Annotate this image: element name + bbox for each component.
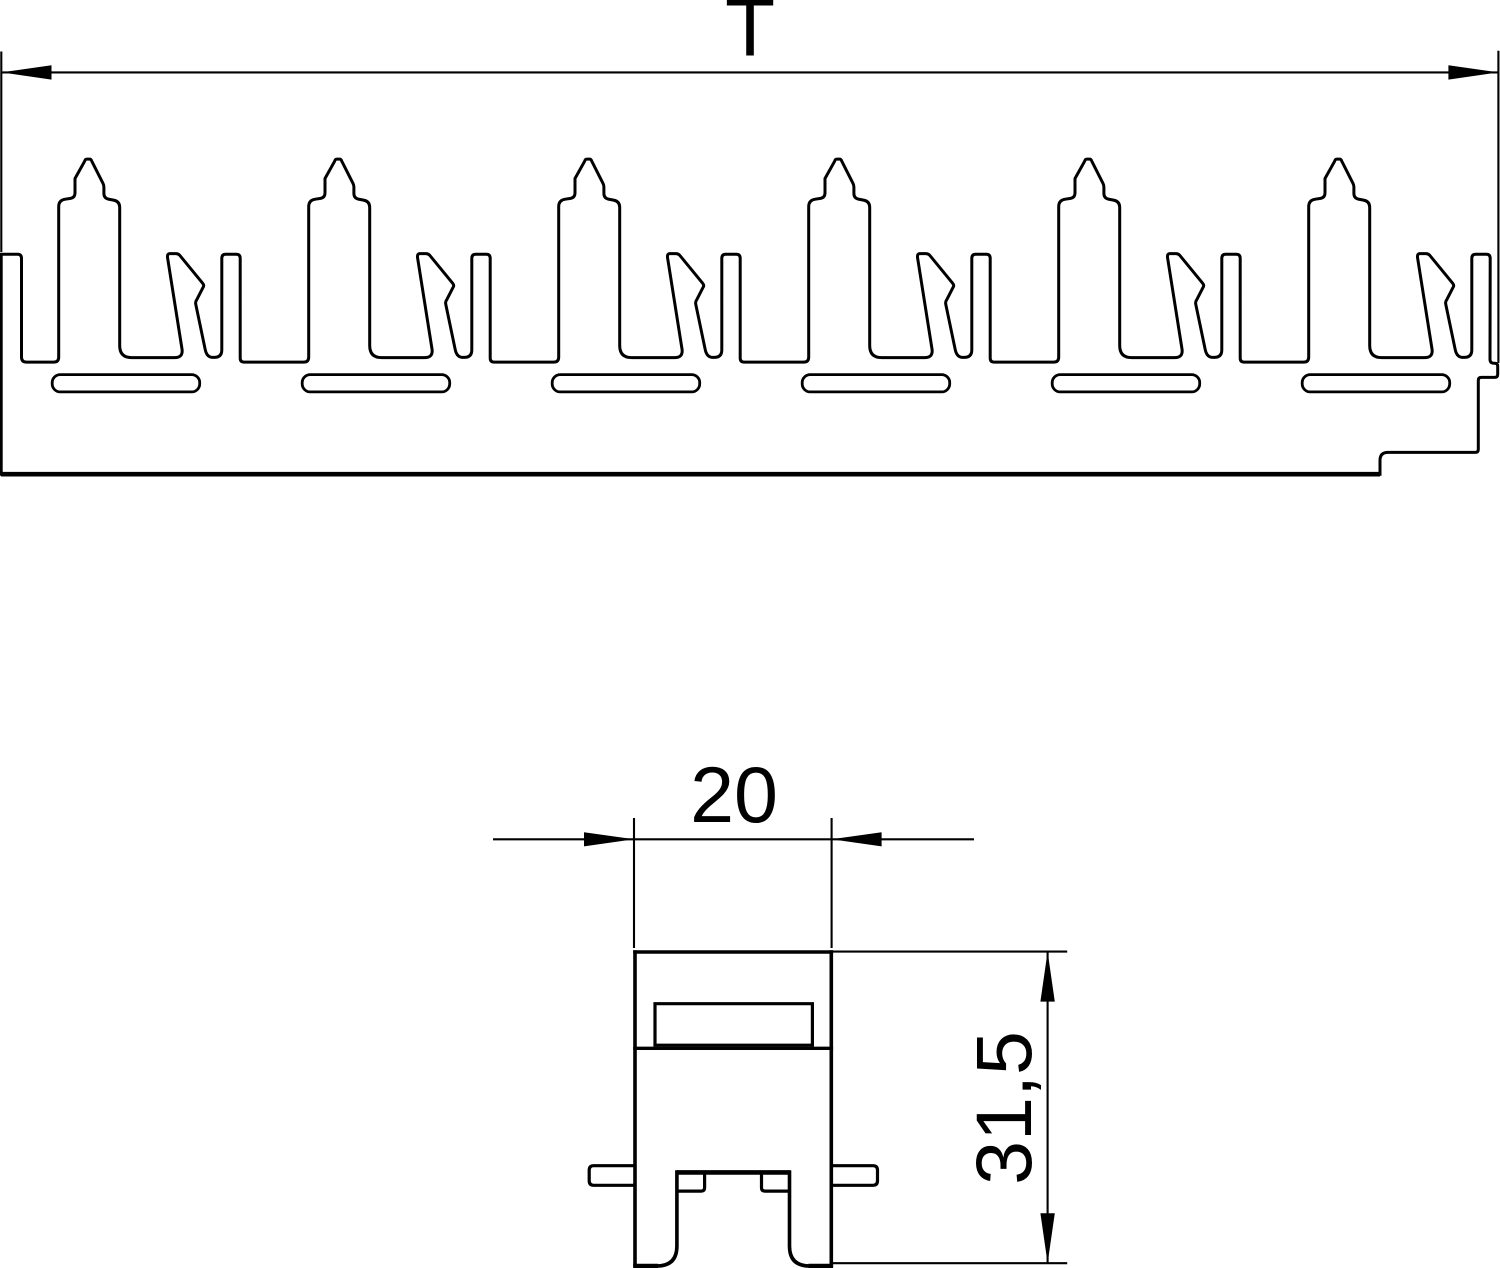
svg-text:T: T [725, 0, 775, 74]
svg-text:20: 20 [690, 750, 778, 839]
svg-text:31,5: 31,5 [959, 1031, 1048, 1185]
